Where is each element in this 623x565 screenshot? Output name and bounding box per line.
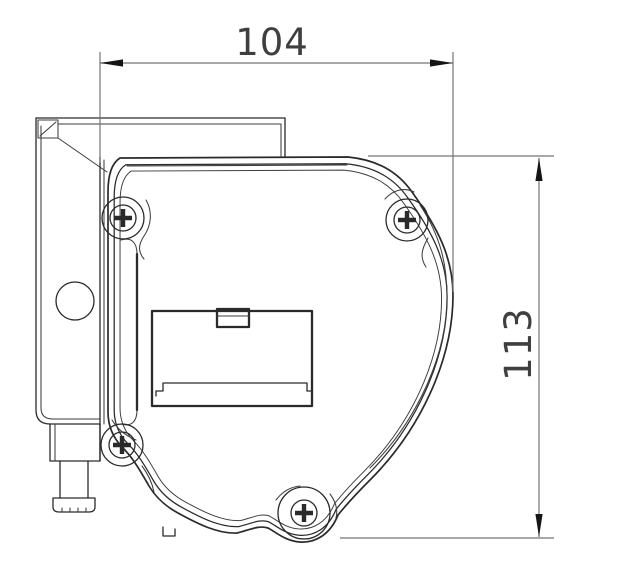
screw-top-right: [394, 207, 420, 233]
screws: [109, 205, 420, 526]
phillips-cross-icon: [114, 209, 132, 227]
housing-middle-contour: [114, 164, 447, 536]
height-dimension-label: 113: [497, 307, 540, 381]
arrowhead-right: [430, 59, 453, 66]
bracket-corner-diagonal: [40, 122, 56, 136]
cover-panel-strip: [156, 383, 312, 396]
width-dimension-label: 104: [235, 21, 309, 64]
bracket-inner-edge: [41, 126, 100, 419]
arrowhead-left: [100, 59, 123, 66]
housing-bottom-tab: [163, 527, 175, 536]
phillips-cross-icon: [398, 211, 416, 229]
top-bar: [36, 118, 285, 157]
screw-bottom-center: [291, 500, 317, 526]
mounting-bracket: [36, 118, 107, 512]
bracket-step-block: [50, 424, 100, 461]
cover-panel: [152, 309, 312, 406]
cover-panel-outline: [152, 311, 312, 406]
technical-drawing-canvas: 104 113: [0, 0, 623, 565]
arrowhead-up: [535, 158, 542, 181]
housing-dimension-drawing: 104 113: [0, 0, 623, 565]
housing-outer-contour: [108, 157, 453, 542]
phillips-cross-icon: [295, 504, 313, 522]
arrowhead-down: [535, 514, 542, 537]
housing-body: [108, 157, 453, 542]
top-bar-inner-edge: [58, 124, 281, 156]
housing-left-rail-bottom-hook: [121, 410, 137, 425]
housing-inner-contour: [120, 170, 442, 529]
housing-left-rail-top-hook: [121, 239, 137, 254]
bracket-outer-edge: [36, 118, 100, 424]
mounting-pin-foot: [53, 498, 95, 512]
mounting-pin: [60, 461, 88, 498]
bracket-hole: [56, 282, 94, 320]
